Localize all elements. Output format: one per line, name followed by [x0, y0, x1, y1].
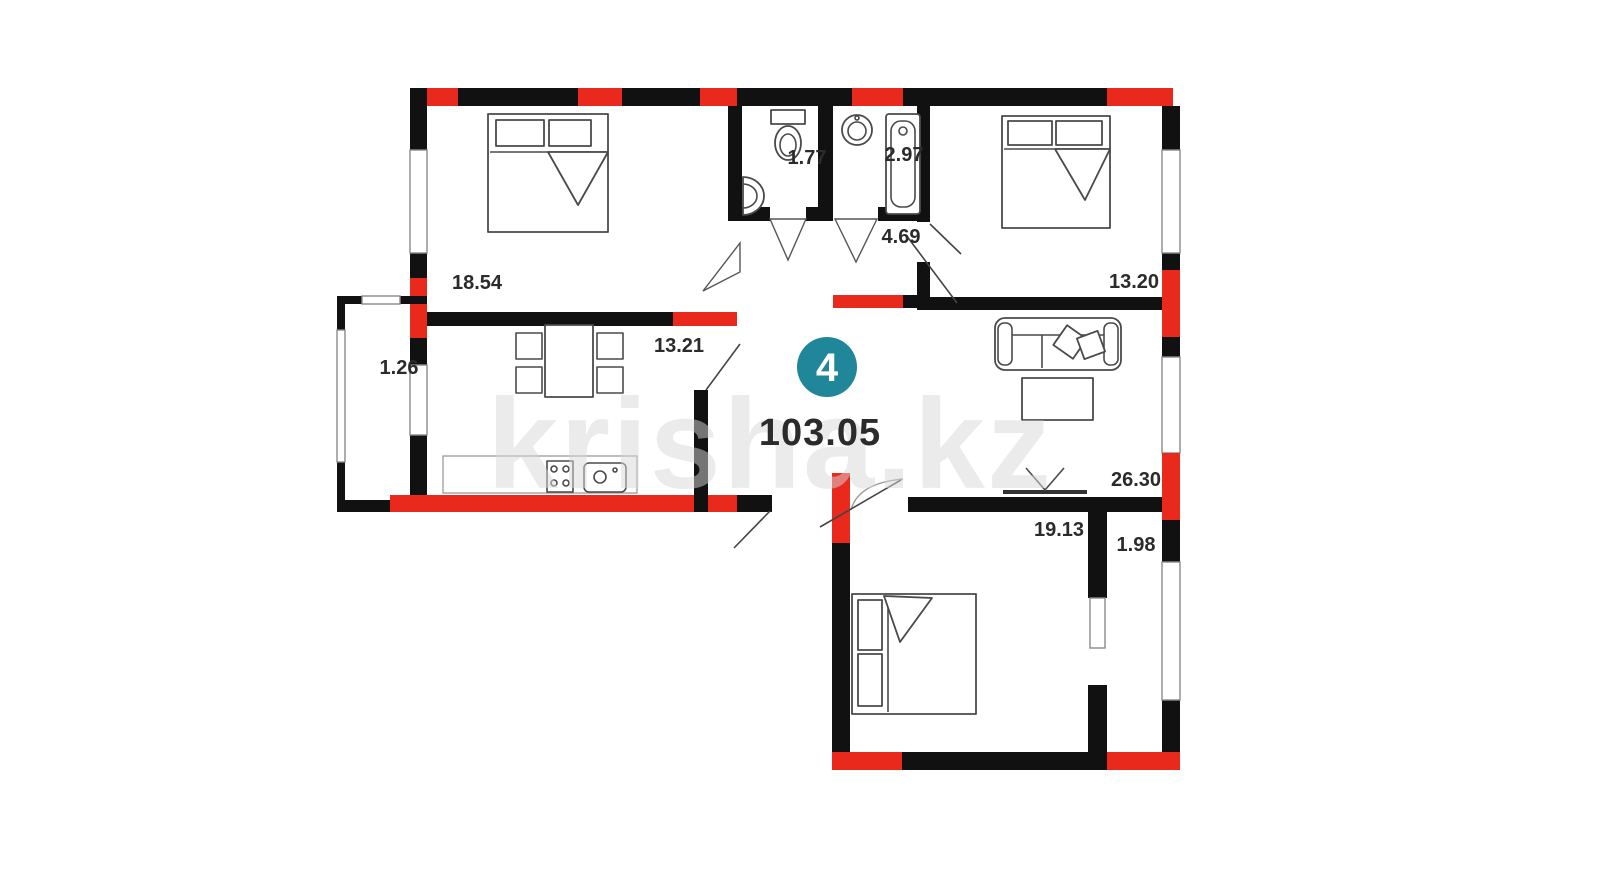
- unit-badge: 4: [797, 337, 857, 397]
- room-area-label-bedroom-bottom: 19.13: [1034, 519, 1084, 541]
- floor-plan-page: krisha.kz 18.54 13.21 1.26 1.77 2.97 4.6…: [0, 0, 1600, 890]
- door-leaf-bedroom-top-right: [930, 224, 961, 254]
- sofa: [995, 318, 1121, 370]
- room-area-label-living-room: 26.30: [1111, 469, 1161, 491]
- entrance-door-leaf: [734, 511, 770, 548]
- room-area-label-kitchen: 13.21: [654, 335, 704, 357]
- room-area-label-wc: 1.77: [788, 147, 827, 169]
- door-leaf-bathroom: [835, 219, 877, 262]
- room-area-label-hallway: 4.69: [882, 226, 921, 248]
- bed-bedroom-top-left: [488, 114, 608, 232]
- bed-bedroom-bottom: [852, 594, 976, 714]
- room-area-label-bedroom-top-right: 13.20: [1109, 271, 1159, 293]
- bed-bedroom-top-right: [1002, 116, 1110, 228]
- bathroom-sink-icon: [842, 115, 872, 145]
- door-leaf-bedroom-top-left: [703, 243, 740, 291]
- door-leaf-wc: [770, 219, 806, 260]
- total-area-label: 103.05: [759, 412, 881, 454]
- room-area-label-bathroom: 2.97: [885, 144, 924, 166]
- room-area-label-storage: 1.98: [1117, 534, 1156, 556]
- unit-badge-number: 4: [816, 346, 839, 390]
- room-area-label-bedroom-top-left: 18.54: [452, 272, 503, 294]
- room-area-label-balcony: 1.26: [380, 357, 419, 379]
- floor-plan-svg: krisha.kz 18.54 13.21 1.26 1.77 2.97 4.6…: [0, 0, 1600, 890]
